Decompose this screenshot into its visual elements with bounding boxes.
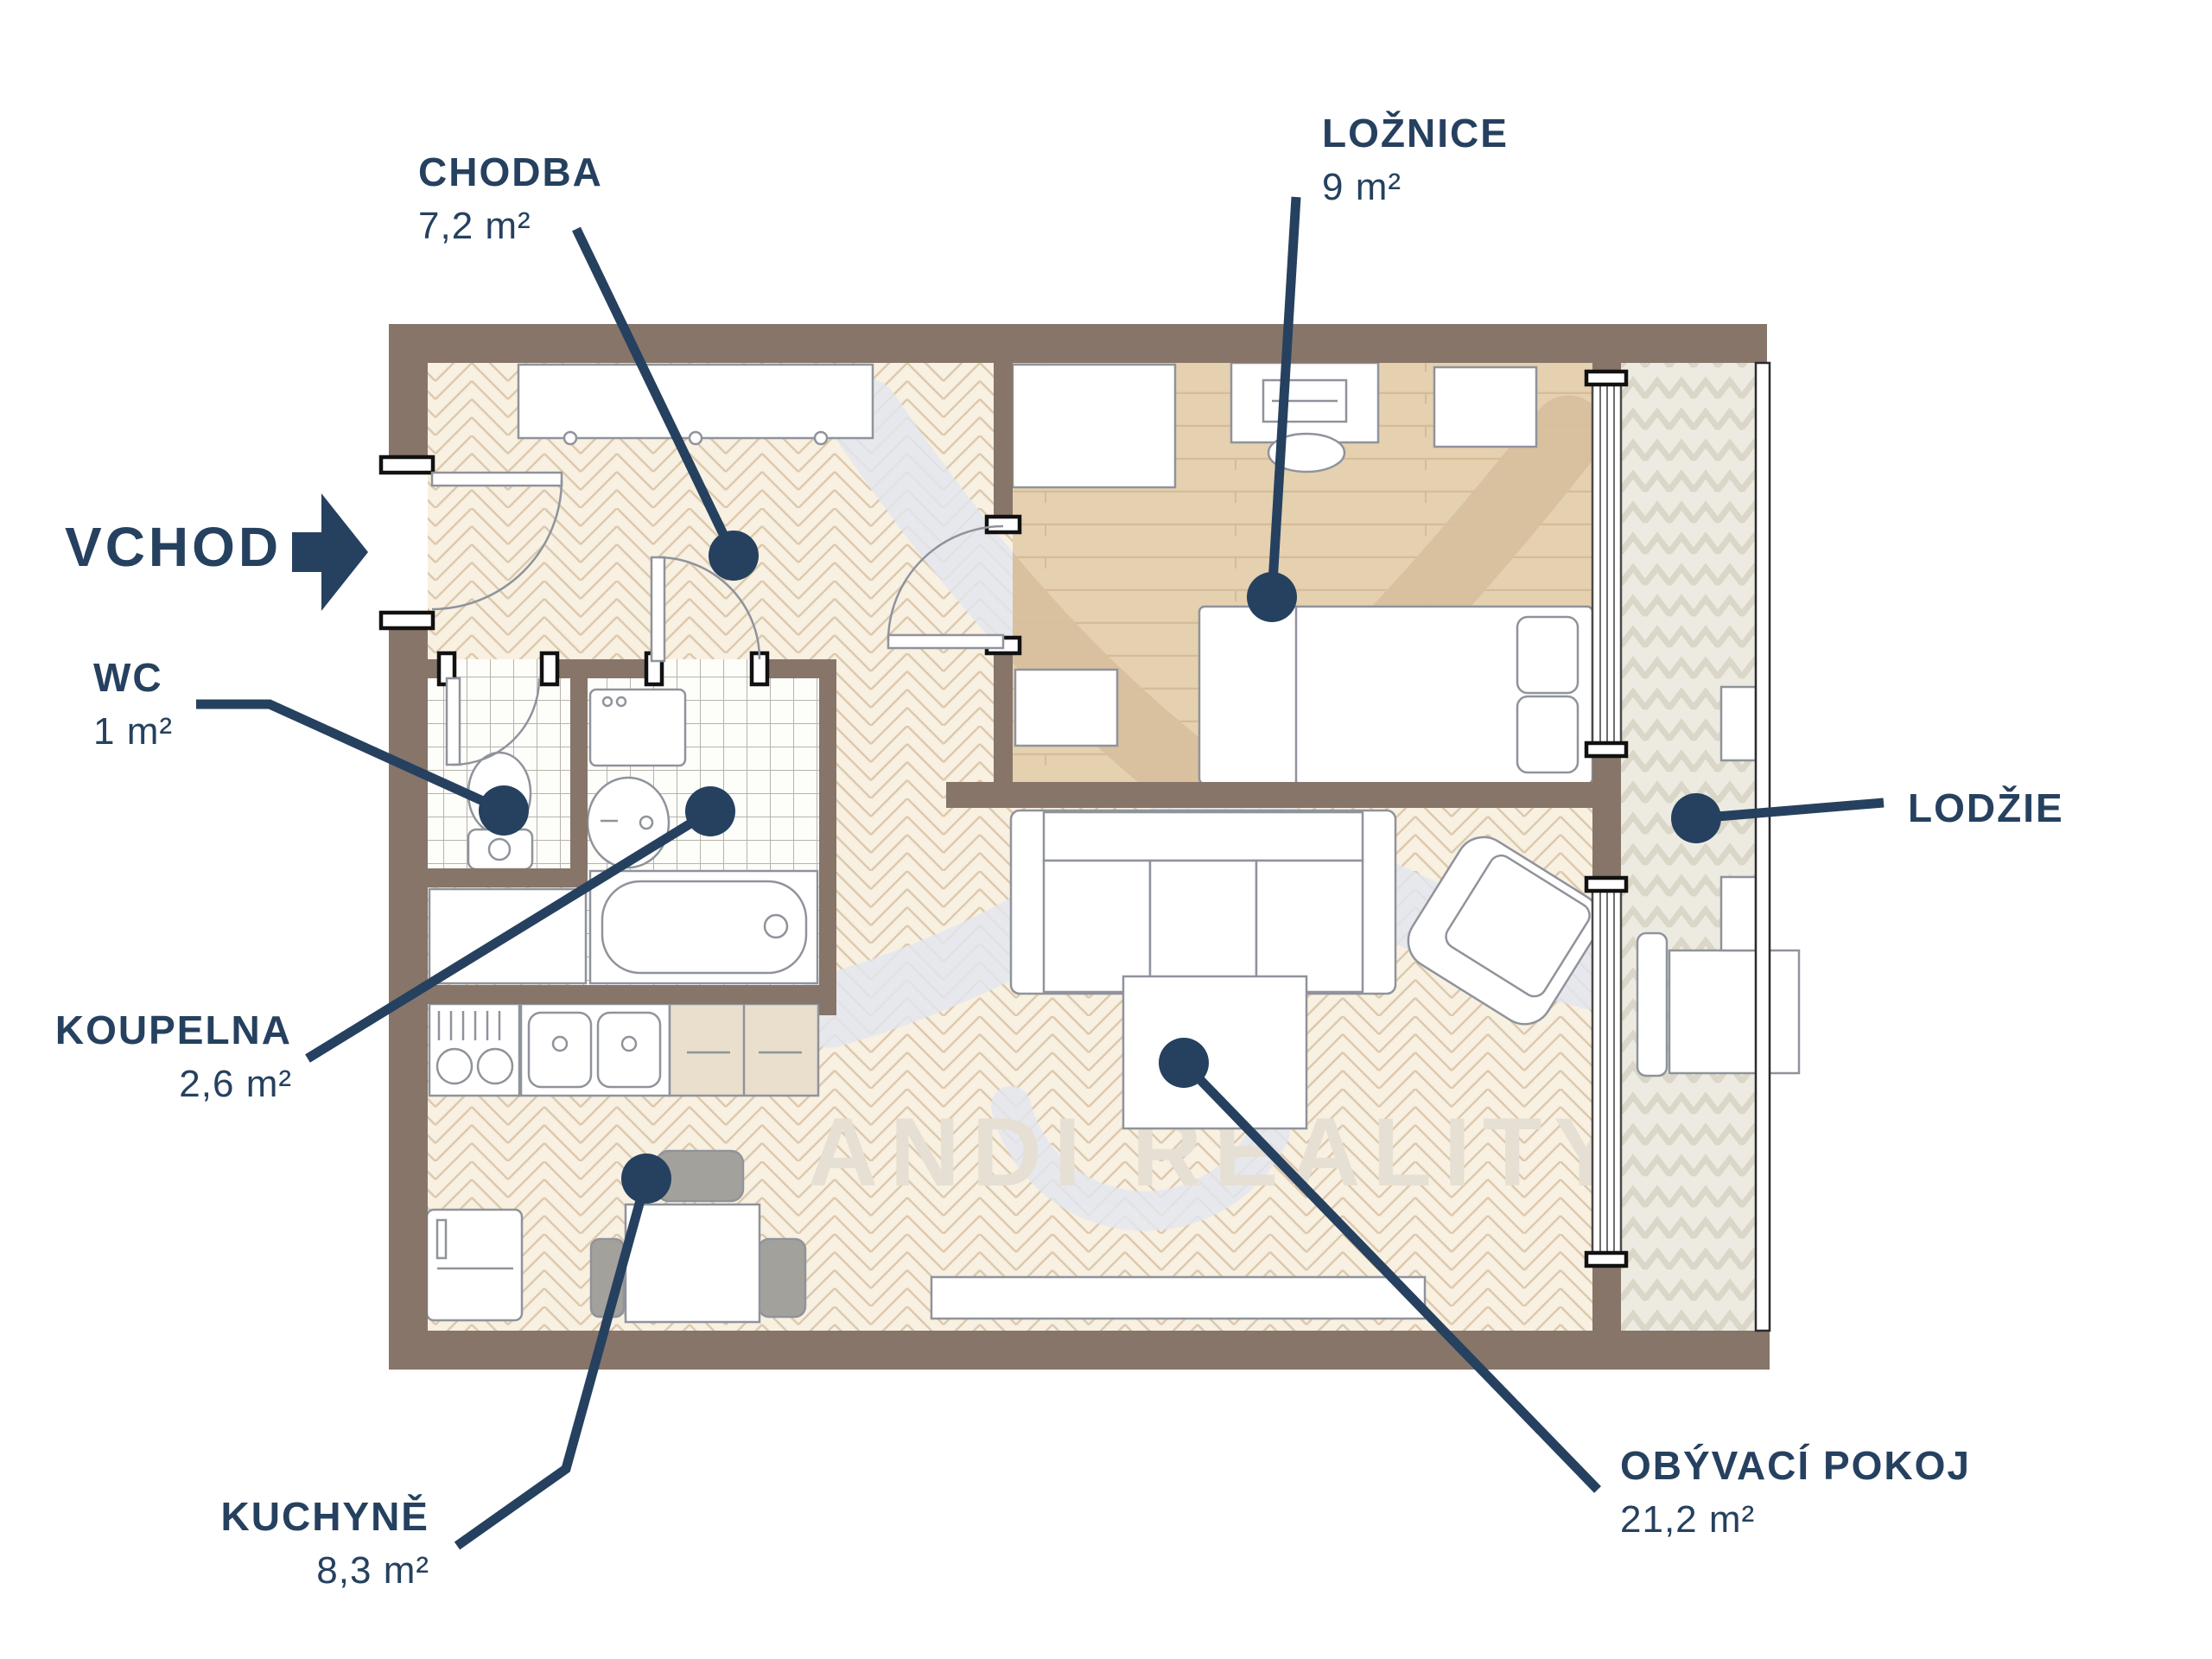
entrance-arrow-icon bbox=[292, 493, 368, 611]
entrance-label: VCHOD bbox=[65, 517, 282, 577]
room-name: WC bbox=[93, 653, 173, 702]
sofa bbox=[1011, 810, 1395, 994]
wall-bedroom-left-b bbox=[994, 641, 1013, 785]
kitchen-sink bbox=[521, 1004, 670, 1096]
washing-machine bbox=[590, 690, 685, 766]
coffee-table bbox=[1123, 976, 1306, 1128]
room-name: LOŽNICE bbox=[1322, 109, 1509, 157]
bedroom-balcony-window bbox=[1592, 382, 1621, 752]
dot-chodba bbox=[709, 531, 759, 581]
room-name: KOUPELNA bbox=[50, 1006, 292, 1054]
room-area: 8,3 m² bbox=[216, 1549, 429, 1592]
wall-top bbox=[389, 324, 1767, 363]
balcony-railing bbox=[1756, 363, 1770, 1331]
floor-plan-page: ANDI REALITY bbox=[0, 0, 2212, 1659]
dot-obyvaci-pokoj bbox=[1159, 1038, 1209, 1088]
hall-wardrobe bbox=[518, 365, 873, 444]
dot-wc bbox=[479, 785, 529, 836]
wall-bedroom-living bbox=[946, 782, 1592, 808]
room-label-chodba: CHODBA 7,2 m² bbox=[418, 148, 603, 248]
room-label-wc: WC 1 m² bbox=[93, 653, 173, 753]
room-label-lodzie: LODŽIE bbox=[1908, 784, 2064, 832]
room-label-koupelna: KOUPELNA 2,6 m² bbox=[50, 1006, 292, 1106]
dot-loznice bbox=[1247, 572, 1297, 622]
wall-wc-bath bbox=[570, 659, 588, 887]
entrance-name: VCHOD bbox=[65, 517, 282, 577]
dot-lodzie bbox=[1671, 793, 1721, 843]
bedroom-nightstand bbox=[1434, 367, 1536, 447]
room-name: KUCHYNĚ bbox=[216, 1492, 429, 1541]
fridge bbox=[427, 1210, 522, 1320]
kitchen-counter bbox=[670, 1004, 818, 1096]
dot-koupelna bbox=[685, 786, 735, 836]
room-area: 1 m² bbox=[93, 710, 173, 753]
wall-bedroom-left-a bbox=[994, 363, 1013, 529]
floor-plan-drawing: ANDI REALITY bbox=[0, 0, 2212, 1659]
bedroom-dresser bbox=[1015, 670, 1117, 746]
dot-kuchyne bbox=[621, 1154, 671, 1204]
bathtub bbox=[590, 871, 817, 983]
room-name: LODŽIE bbox=[1908, 784, 2064, 832]
bathroom-sink bbox=[588, 778, 669, 868]
room-area: 9 m² bbox=[1322, 166, 1509, 209]
balcony-floor bbox=[1621, 363, 1756, 1331]
wall-left-upper bbox=[389, 324, 428, 473]
wall-kitchen-top bbox=[428, 985, 836, 1004]
bed bbox=[1199, 607, 1592, 784]
room-area: 7,2 m² bbox=[418, 205, 603, 248]
sideboard bbox=[931, 1277, 1425, 1319]
wall-bath-living bbox=[819, 659, 836, 1015]
room-area: 21,2 m² bbox=[1620, 1498, 1971, 1541]
room-name: OBÝVACÍ POKOJ bbox=[1620, 1441, 1971, 1490]
wall-wc-bottom bbox=[428, 868, 588, 887]
room-label-kuchyne: KUCHYNĚ 8,3 m² bbox=[216, 1492, 429, 1592]
stove bbox=[429, 1004, 519, 1096]
room-area: 2,6 m² bbox=[50, 1063, 292, 1106]
room-label-obyvaci-pokoj: OBÝVACÍ POKOJ 21,2 m² bbox=[1620, 1441, 1971, 1541]
living-balcony-window bbox=[1592, 886, 1621, 1263]
room-label-loznice: LOŽNICE 9 m² bbox=[1322, 109, 1509, 209]
room-name: CHODBA bbox=[418, 148, 603, 196]
bedroom-wardrobe bbox=[1013, 365, 1175, 487]
